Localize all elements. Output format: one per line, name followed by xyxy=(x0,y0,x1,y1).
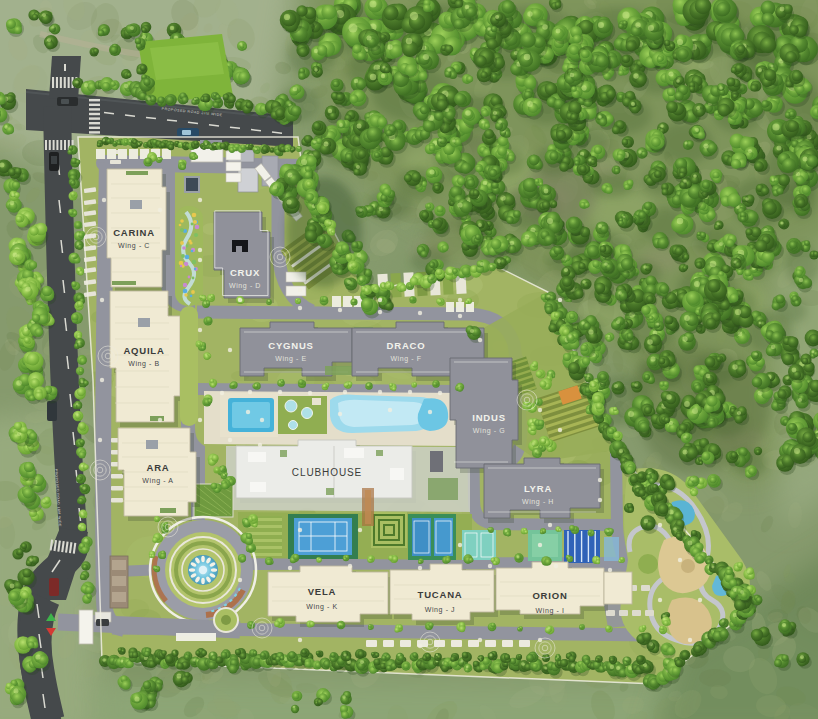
svg-text:INDUS: INDUS xyxy=(472,412,506,423)
svg-text:LYRA: LYRA xyxy=(524,483,552,494)
svg-text:CYGNUS: CYGNUS xyxy=(268,340,313,351)
svg-text:CLUBHOUSE: CLUBHOUSE xyxy=(292,467,362,478)
svg-text:DRACO: DRACO xyxy=(387,340,426,351)
svg-text:Wing - K: Wing - K xyxy=(306,603,338,611)
svg-text:Wing - A: Wing - A xyxy=(142,477,173,485)
svg-text:Wing - I: Wing - I xyxy=(536,607,565,615)
svg-text:Wing - D: Wing - D xyxy=(229,282,261,290)
svg-text:Wing - G: Wing - G xyxy=(473,427,505,435)
svg-text:Wing - F: Wing - F xyxy=(390,355,421,363)
svg-text:Wing - C: Wing - C xyxy=(118,242,150,250)
svg-text:Wing - E: Wing - E xyxy=(275,355,307,363)
svg-text:Wing - B: Wing - B xyxy=(128,360,160,368)
svg-text:CRUX: CRUX xyxy=(230,267,260,278)
svg-text:AQUILA: AQUILA xyxy=(123,345,164,356)
svg-text:ORION: ORION xyxy=(532,590,567,601)
svg-text:TUCANA: TUCANA xyxy=(418,589,463,600)
svg-text:ARA: ARA xyxy=(147,462,170,473)
svg-text:VELA: VELA xyxy=(308,586,337,597)
svg-text:CARINA: CARINA xyxy=(113,227,155,238)
svg-text:Wing - J: Wing - J xyxy=(425,606,455,614)
svg-text:Wing - H: Wing - H xyxy=(522,498,554,506)
